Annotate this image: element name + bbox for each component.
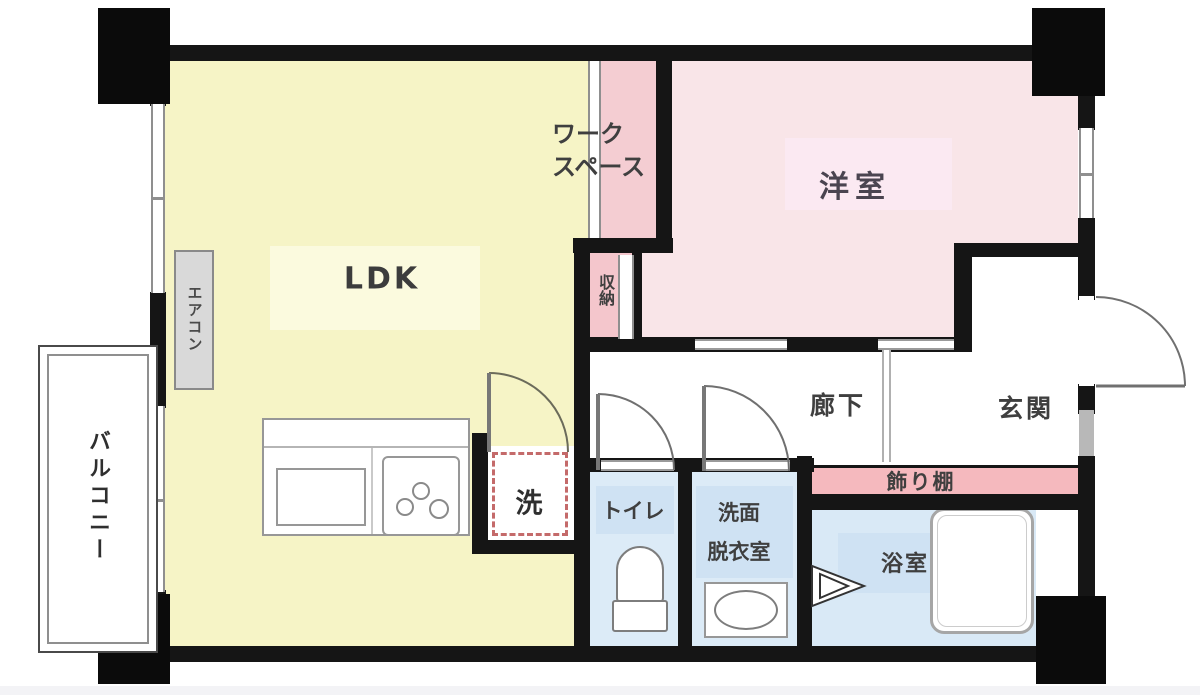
stove-burner — [396, 498, 414, 516]
stove-burner — [429, 499, 449, 519]
label-workspace: ワーク スペース — [552, 118, 645, 184]
label-bathroom: 浴室 — [881, 546, 929, 578]
label-workspace-line1: ワーク — [552, 118, 645, 151]
label-washer: 洗 — [516, 482, 543, 521]
room-ldk — [160, 55, 590, 652]
sliding-door-western-hallway — [695, 339, 787, 350]
label-storage: 収納 — [593, 274, 617, 306]
label-washroom-line2: 脱衣室 — [708, 536, 771, 566]
wall-bottom — [160, 646, 1040, 662]
wall-washer-bottom — [472, 540, 586, 554]
wall-toilet-washroom — [678, 472, 692, 652]
kitchen-sink — [276, 468, 366, 526]
wall-right-seg — [1078, 90, 1095, 130]
wall-shelf-bottom — [812, 494, 1078, 510]
pillar-top-right — [1032, 8, 1105, 96]
bathtub-inner — [937, 515, 1027, 627]
washroom-door-opening — [703, 460, 790, 471]
entrance-step — [882, 350, 891, 462]
window-right-upper — [1079, 128, 1094, 218]
wall-washroom-bath — [797, 456, 812, 652]
label-balcony: バルコニー — [81, 430, 113, 565]
storage-door — [618, 255, 634, 339]
washstand-basin — [714, 590, 778, 630]
toilet-door-opening — [601, 460, 674, 471]
label-western-room: 洋室 — [819, 162, 891, 206]
wall-western-entrance-v — [954, 245, 972, 352]
label-ldk: LDK — [344, 262, 420, 297]
window-left-upper — [151, 101, 165, 293]
wall-washer-left — [472, 433, 488, 553]
label-aircon: エアコン — [185, 285, 206, 353]
label-toilet: トイレ — [602, 495, 665, 525]
kitchen-counter-edge — [264, 446, 468, 448]
label-workspace-line2: スペース — [552, 151, 645, 184]
label-hallway: 廊下 — [810, 386, 866, 422]
bottom-edge — [0, 686, 1200, 695]
wall-workspace-right — [656, 45, 672, 253]
wall-right-seg — [1078, 218, 1095, 300]
label-entrance: 玄関 — [998, 389, 1054, 425]
wall-western-entrance-h — [954, 243, 1078, 257]
floor-plan: LDK ワーク スペース 洋室 収納 廊下 玄関 飾り棚 トイレ 洗面 脱衣室 … — [0, 0, 1200, 695]
entrance-door-opening — [1079, 296, 1094, 386]
toilet-bowl — [616, 546, 664, 604]
room-western-ext — [641, 253, 681, 337]
wall-ldk-right — [574, 238, 590, 652]
kitchen-stove — [382, 456, 460, 536]
sliding-door-western-entrance — [878, 339, 954, 350]
label-display-shelf: 飾り棚 — [887, 466, 956, 496]
wall-top — [160, 45, 1040, 61]
pillar-bottom-right — [1036, 596, 1106, 684]
stove-burner — [412, 482, 430, 500]
entrance-side-panel — [1079, 410, 1094, 456]
toilet-tank — [612, 600, 668, 632]
room-entrance-upper — [972, 257, 1078, 337]
label-washroom-line1: 洗面 — [718, 497, 760, 527]
pillar-top-left — [98, 8, 170, 104]
bathtub — [930, 508, 1034, 634]
kitchen-counter-divider — [371, 448, 373, 534]
